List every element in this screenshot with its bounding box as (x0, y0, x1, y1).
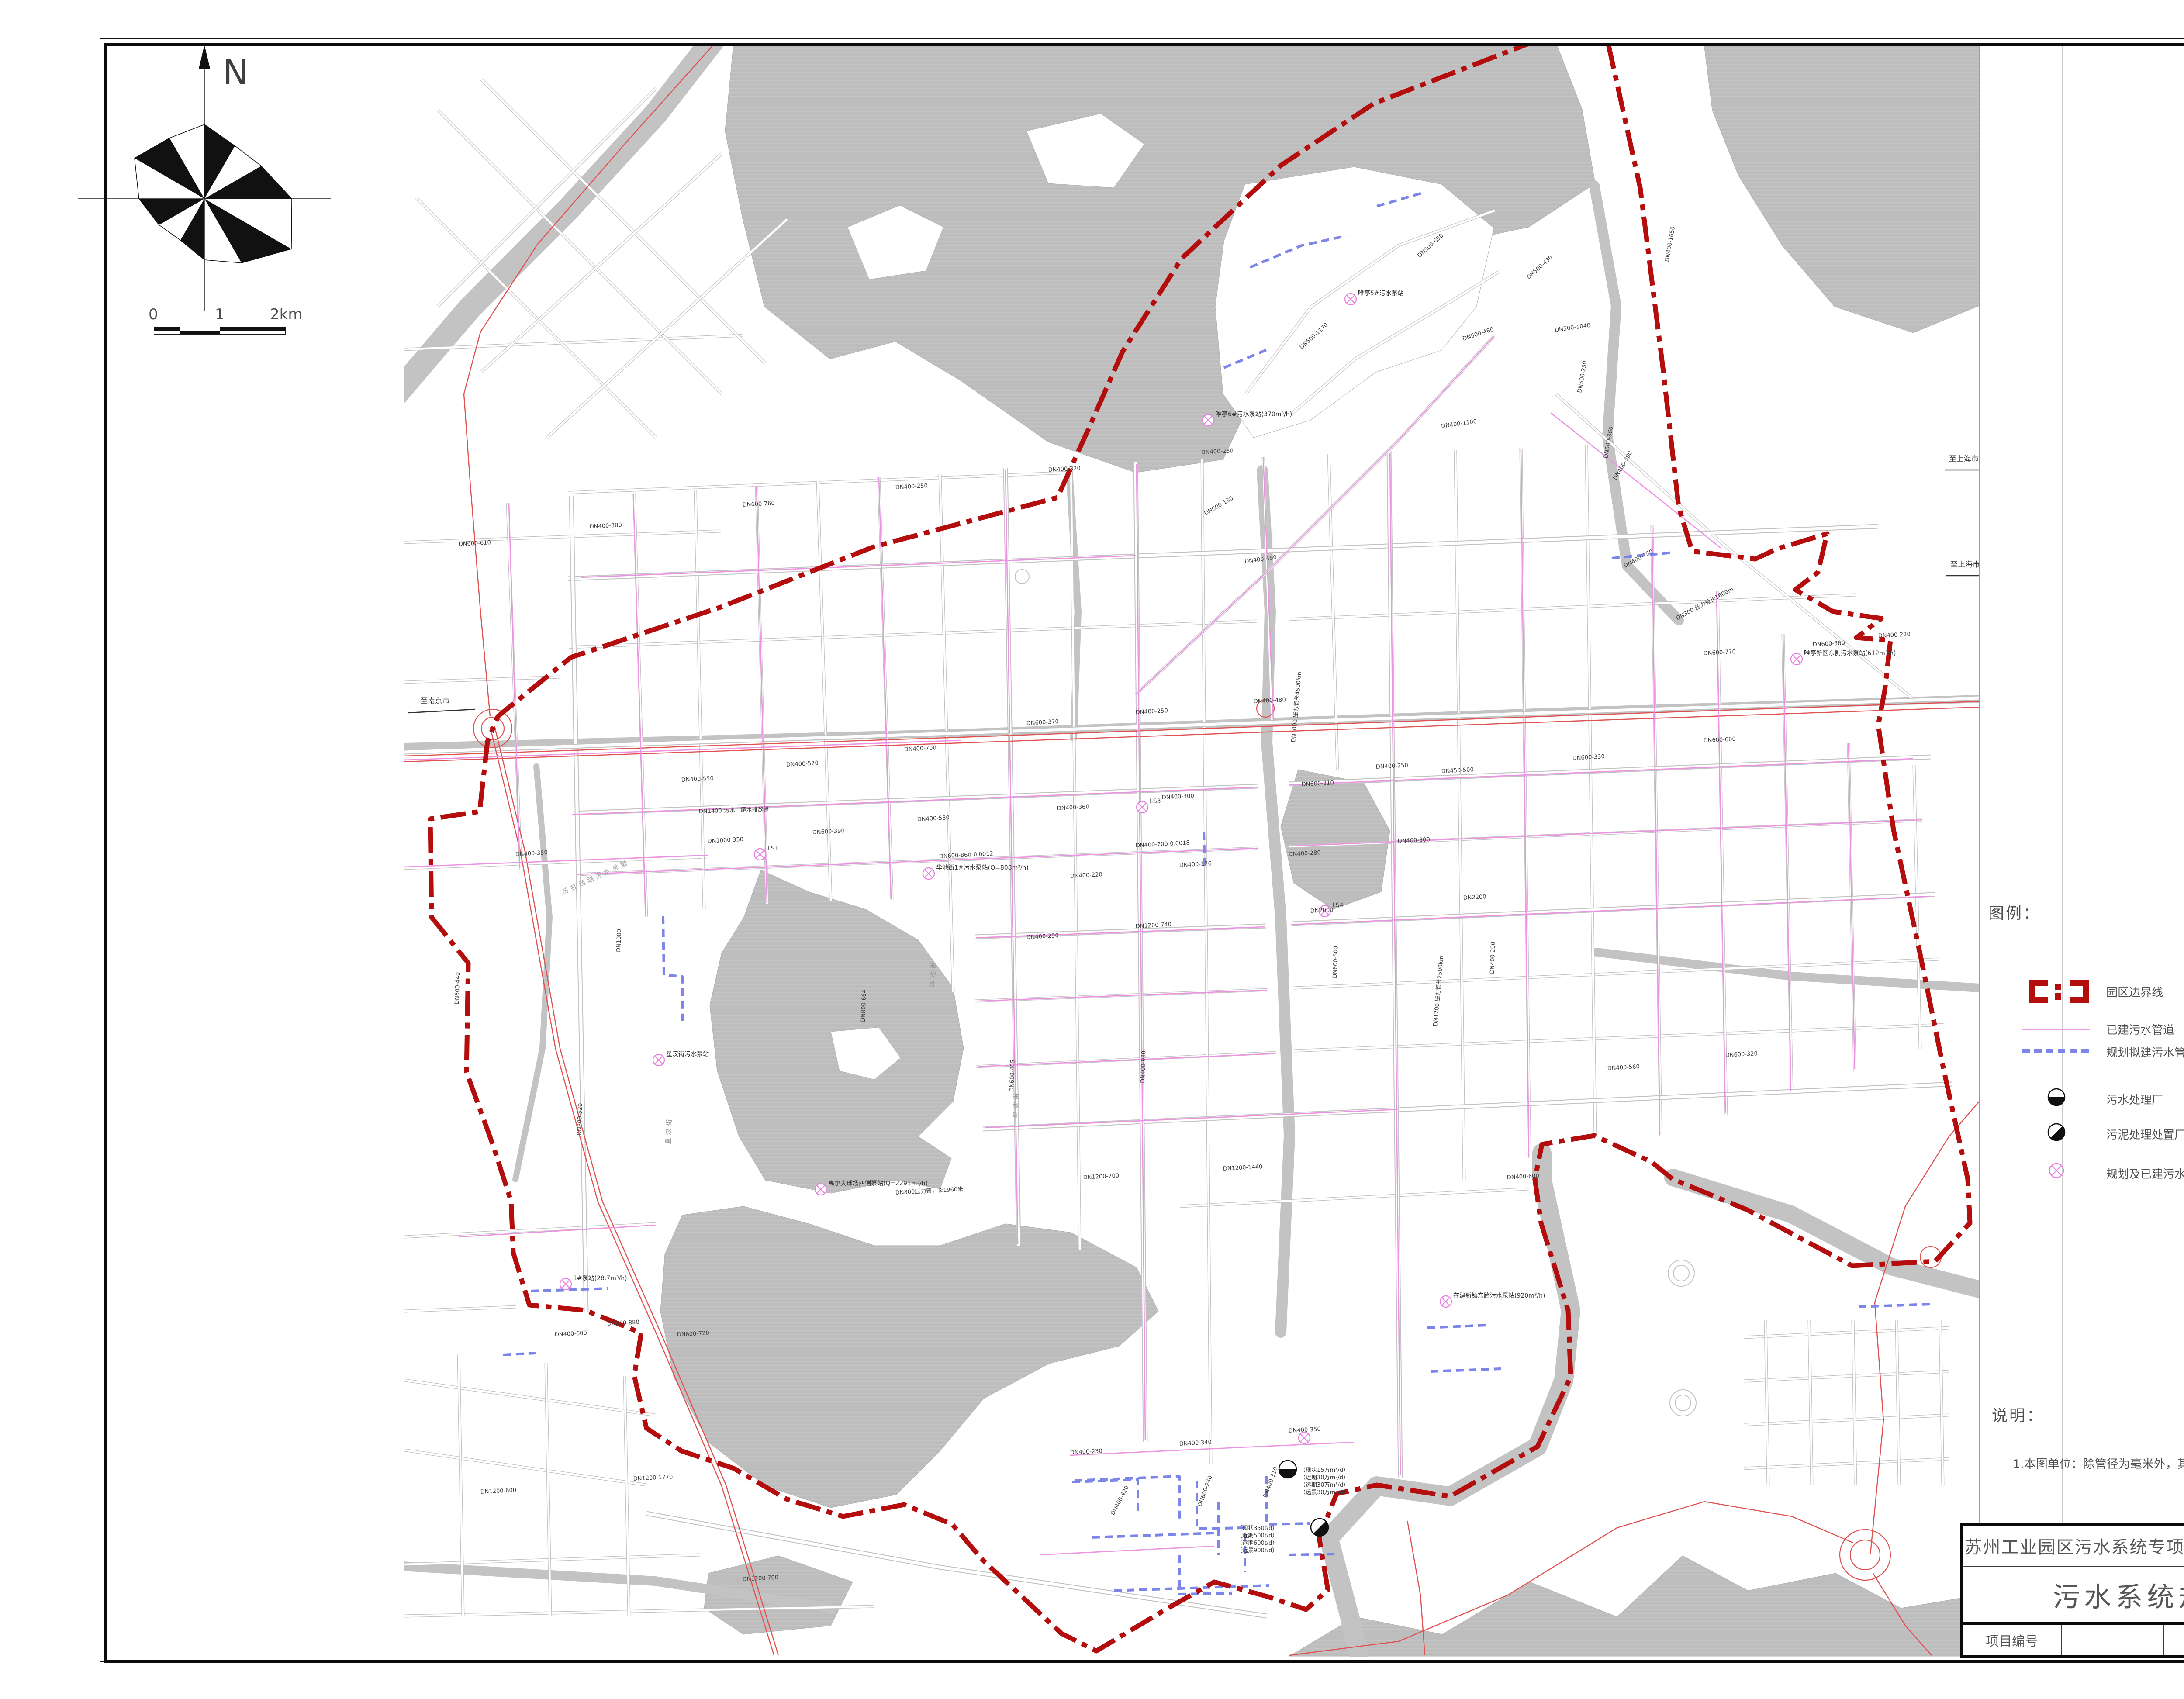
notes-line-1: 1.本图单位：除管径为毫米外，其余均为米。 (2013, 1454, 2184, 1471)
pipe-label: DN400-700-0.0018 (1135, 840, 1190, 849)
pipe-label: DN1200-700 (1083, 1173, 1119, 1181)
figure-no-label: 附图编号 (2164, 1625, 2184, 1655)
notes-title: 说明： (1992, 1403, 2044, 1426)
scale-tick-0: 0 (149, 306, 158, 323)
pipe-label: DN400-290 (1026, 932, 1059, 941)
pipe-label: DN400-1100 (1441, 418, 1477, 430)
legend-label-planned-pipe: 规划拟建污水管道 (2106, 1044, 2184, 1060)
pipe-label: DN500-250 (1576, 360, 1589, 394)
pipe-label: DN800-520 (576, 1103, 584, 1136)
project-no-value (2062, 1625, 2164, 1655)
pipe-label: DN400-350 (1288, 1426, 1321, 1434)
pump-station-label: 唯亭5#污水泵站 (1358, 290, 1404, 297)
legend-pump-station-symbol (2048, 1162, 2065, 1179)
pipe-label: DN1000-350 (707, 836, 743, 845)
pump-station-label: LS1 (767, 845, 779, 852)
pipe-label: DN400-980 (1140, 1051, 1147, 1084)
pipe-label: DN400-1650 (1664, 226, 1676, 262)
pipe-label: DN1200-1770 (633, 1474, 673, 1482)
pipe-label: DN1200 压力管长2500km (1432, 955, 1445, 1026)
pipe-label: DN1000 (615, 929, 623, 952)
pipe-label: DN400-340 (1179, 1439, 1212, 1447)
pipe-label: DN400-380 (589, 522, 622, 530)
direction-annotation: 至上海市 (1949, 455, 1979, 463)
pipe-label: DN300 压力管长1600m (1675, 586, 1735, 622)
drawing-sheet: LS1LS3LS4星汉街污水泵站华池街1#污水泵站(Q=808m³/h)高尔夫球… (0, 0, 2184, 1699)
plant-capacity-label: （近期500t/d） (1237, 1533, 1278, 1539)
compass-rose: N (73, 37, 335, 325)
plant-capacity-label: （近期30万m³/d） (1300, 1475, 1349, 1481)
pump-station-label: LS4 (1332, 902, 1344, 909)
project-no-label: 项目编号 (1963, 1625, 2062, 1655)
pipe-label: DN400-300 (1161, 793, 1194, 801)
pipe-label: DN400-480 (1253, 697, 1286, 705)
pump-station-label: LS3 (1150, 798, 1161, 805)
pipe-label: DN400-230 (1201, 448, 1234, 456)
scale-tick-1: 1 (215, 306, 225, 323)
pipe-label: DN400-300 (1397, 836, 1430, 845)
plant-capacity-label: （远景30万m³/d） (1300, 1489, 1349, 1496)
road-name-label: 苏虹西路污水总管 (561, 858, 631, 896)
pipe-label: DN600-240 (1197, 1475, 1214, 1508)
pipe-label: DN400-420 (1109, 1485, 1130, 1516)
pipe-label: DN400-320 (1048, 465, 1081, 473)
plant-capacity-label: （远期30万m³/d） (1300, 1482, 1349, 1488)
scale-tick-2km: 2km (270, 306, 302, 323)
plant-capacity-label: （现状15万m³/d） (1300, 1467, 1349, 1474)
pipe-label: DN400-580 (917, 815, 950, 823)
pipe-label: DN400-570 (786, 760, 819, 768)
pipe-label: DN400-220 (1070, 871, 1102, 880)
legend-wwtp-symbol (2047, 1088, 2066, 1107)
pipe-label: DN600-500 (1332, 946, 1340, 979)
pipe-label: DN600-880 (607, 1319, 639, 1327)
pipe-label: DN600-130 (1203, 495, 1235, 517)
pipe-label: DN1000 压力管长4500km (1290, 671, 1303, 742)
right-fold-line (2062, 43, 2063, 1523)
pump-station-label: 唯亭6#污水泵站(370m³/h) (1216, 411, 1292, 418)
legend-existing-pipe-symbol (2022, 1027, 2091, 1032)
pipe-label: DN600-405 (1009, 1060, 1016, 1092)
legend-planned-pipe-symbol (2022, 1048, 2091, 1053)
legend-label-wwtp: 污水处理厂 (2106, 1091, 2163, 1107)
pipe-label: DN600-440 (454, 972, 462, 1005)
north-arrow-icon (199, 45, 210, 69)
pump-station-label: 高尔夫球场西侧泵站(Q=2291m³/h) (828, 1180, 928, 1187)
pipe-label: DN2000 (1310, 907, 1334, 915)
pump-station-label: 星汉街污水泵站 (666, 1051, 709, 1058)
pipe-label: DN600-370 (1026, 718, 1059, 727)
map-left-margin-line (404, 43, 404, 1658)
pipe-label: DN600-760 (742, 500, 775, 508)
pipe-label: DN400-230 (1070, 1448, 1102, 1456)
pipe-label: DN500-430 (1526, 254, 1554, 281)
title-block-bottom-row: 项目编号 附图编号 DF00D-01 (1963, 1625, 2184, 1655)
legend-label-sludge-plant: 污泥处理处置厂 (2106, 1126, 2184, 1142)
pump-station-label: 在建新镇东路污水泵站(920m³/h) (1453, 1292, 1545, 1299)
road-name-label: 华池街 (929, 960, 937, 988)
legend-label-pump-station: 规划及已建污水泵站 (2106, 1165, 2184, 1181)
plant-capacity-label: （远期600t/d） (1237, 1540, 1278, 1547)
water-layer (395, 40, 1979, 1656)
legend-sludge-plant-symbol (2047, 1122, 2066, 1142)
pipe-label: DN400-290 (1489, 942, 1497, 974)
legend-label-existing-pipe: 已建污水管道 (2106, 1021, 2174, 1037)
drawing-title: 污水系统规划图 (1963, 1567, 2184, 1625)
pipe-label: DN400-250 (1135, 708, 1168, 716)
pipe-label: DN800压力管，长1960米 (895, 1186, 963, 1196)
pipe-label: DN600-320 (1725, 1050, 1758, 1059)
pipe-label: DN600-770 (1703, 649, 1736, 657)
plant-capacity-label: （远景900t/d） (1237, 1547, 1278, 1554)
pump-station-label: 华池街1#污水泵站(Q=808m³/h) (936, 864, 1029, 871)
legend-label-boundary: 园区边界线 (2106, 984, 2163, 1000)
pipe-label: DN600-600 (1703, 736, 1736, 744)
road-name-label: 星湖街 (1012, 1091, 1020, 1119)
pipe-label: DN600-330 (1572, 753, 1605, 762)
pipe-label: DN1200-1440 (1223, 1164, 1262, 1172)
pipe-label: DN400-700 (904, 745, 936, 753)
pipe-label: DN600-360 (1812, 640, 1845, 648)
road-name-label: 星汉街 (664, 1117, 673, 1145)
legend-boundary-symbol (2027, 979, 2092, 1004)
pipe-label: DN2200 (1463, 894, 1486, 901)
pipe-label: DN400-560 (1607, 1064, 1640, 1072)
scale-bar (154, 327, 286, 335)
plant-capacity-label: （现状350t/d） (1237, 1525, 1278, 1532)
pipe-label: DN600-390 (812, 828, 845, 836)
pipe-label: DN450-500 (1441, 767, 1474, 775)
pipe-label: DN800-664 (860, 990, 868, 1022)
title-block: 苏州工业园区污水系统专项规划（2015-2030） 污水系统规划图 项目编号 附… (1960, 1523, 2184, 1658)
pump-station-label: 唯亭新区东侧污水泵站(612m³/h) (1804, 649, 1896, 657)
pipe-label: DN400-550 (681, 775, 714, 784)
pipe-label: DN400-220 (1878, 631, 1911, 639)
north-label: N (223, 53, 248, 93)
pipe-label: DN400-360 (1057, 804, 1089, 812)
pipe-label: DN400-310 (1262, 1466, 1279, 1499)
pipe-label: DN500-1040 (1554, 322, 1591, 334)
direction-annotation: 至南京市 (420, 697, 450, 705)
pipe-label: DN400-250 (1375, 762, 1408, 770)
direction-annotation: 至上海市 (1950, 560, 1980, 569)
map-right-frame-line (1979, 43, 1980, 1523)
pipe-label: DN1200-600 (480, 1487, 516, 1495)
pump-station-label: 1#泵站(28.7m³/h) (573, 1275, 627, 1282)
project-title: 苏州工业园区污水系统专项规划（2015-2030） (1963, 1526, 2184, 1567)
pipe-label: DN400-600 (554, 1330, 587, 1338)
legend-title: 图例： (1988, 901, 2041, 923)
pipe-label: DN600-610 (458, 539, 491, 548)
pipe-label: DN400-250 (895, 483, 928, 491)
